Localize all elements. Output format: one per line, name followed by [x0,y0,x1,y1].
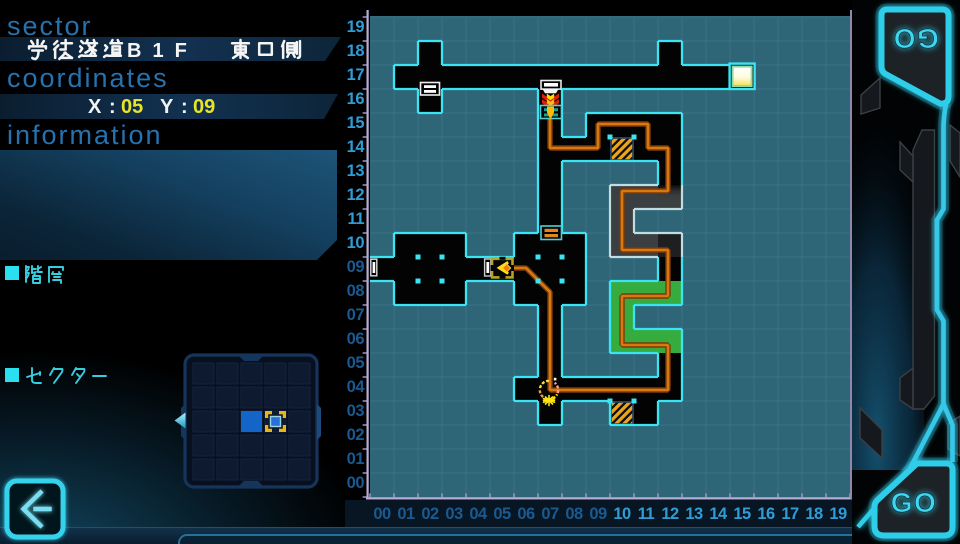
svg-text:GO: GO [892,23,939,54]
svg-text:GO: GO [891,487,938,518]
